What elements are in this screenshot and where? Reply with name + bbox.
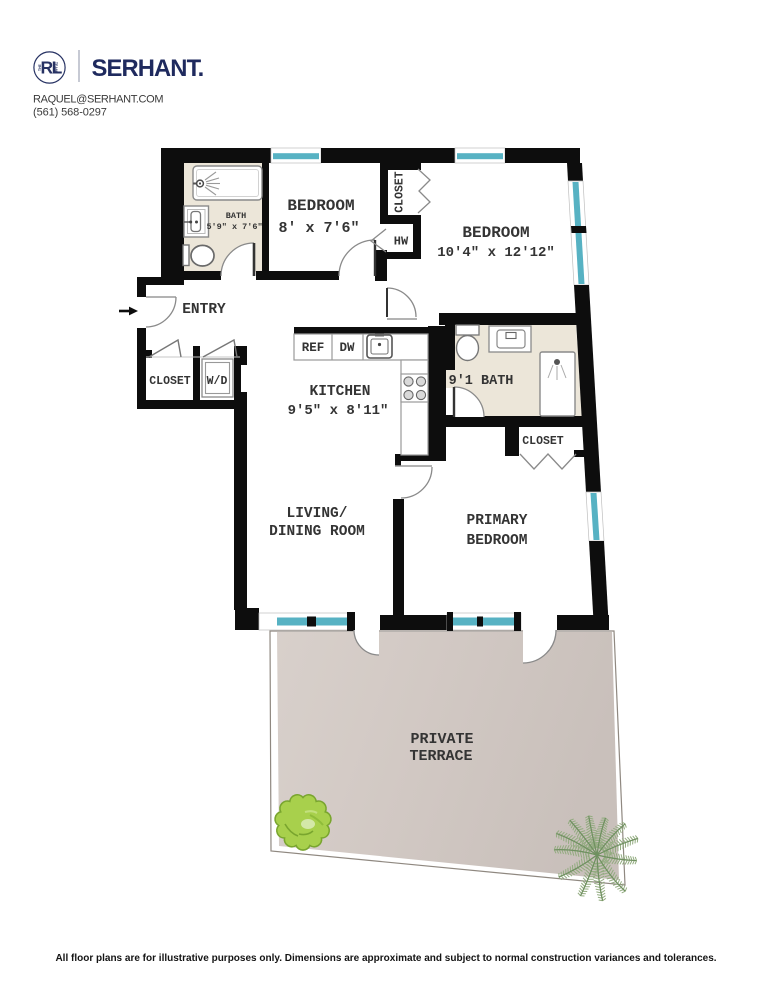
svg-text:RL: RL [41,58,63,78]
svg-text:PRIMARY: PRIMARY [467,513,528,529]
svg-text:CLOSET: CLOSET [522,435,564,448]
svg-text:ENTRY: ENTRY [182,302,226,318]
svg-text:TEAM: TEAM [54,62,58,72]
svg-text:DW: DW [339,341,355,355]
svg-text:TERRACE: TERRACE [409,748,472,765]
svg-text:DINING ROOM: DINING ROOM [269,524,365,540]
svg-text:5'9" x 7'6": 5'9" x 7'6" [206,222,262,232]
svg-text:(561) 568-0297: (561) 568-0297 [33,107,107,119]
svg-text:THE: THE [38,63,42,71]
svg-text:W/D: W/D [207,375,228,388]
svg-text:PRIVATE: PRIVATE [410,731,473,748]
svg-text:HW: HW [394,235,409,249]
svg-text:CLOSET: CLOSET [149,375,191,388]
svg-text:10'4" x 12'12": 10'4" x 12'12" [437,245,555,261]
svg-text:LIVING/: LIVING/ [287,506,348,522]
svg-text:RAQUEL@SERHANT.COM: RAQUEL@SERHANT.COM [33,94,163,106]
svg-text:BEDROOM: BEDROOM [287,197,354,215]
svg-text:BEDROOM: BEDROOM [467,533,528,549]
svg-text:BEDROOM: BEDROOM [462,224,529,242]
svg-text:9'5" x 8'11": 9'5" x 8'11" [288,403,389,419]
svg-text:9'1 BATH: 9'1 BATH [449,374,514,389]
svg-text:CLOSET: CLOSET [394,171,407,213]
svg-text:REF: REF [302,341,325,355]
svg-text:8' x 7'6": 8' x 7'6" [278,220,359,237]
svg-text:BATH: BATH [226,211,246,221]
svg-text:SERHANT.: SERHANT. [92,55,204,82]
svg-text:KITCHEN: KITCHEN [310,384,371,400]
svg-text:All floor plans are for illust: All floor plans are for illustrative pur… [55,953,716,964]
